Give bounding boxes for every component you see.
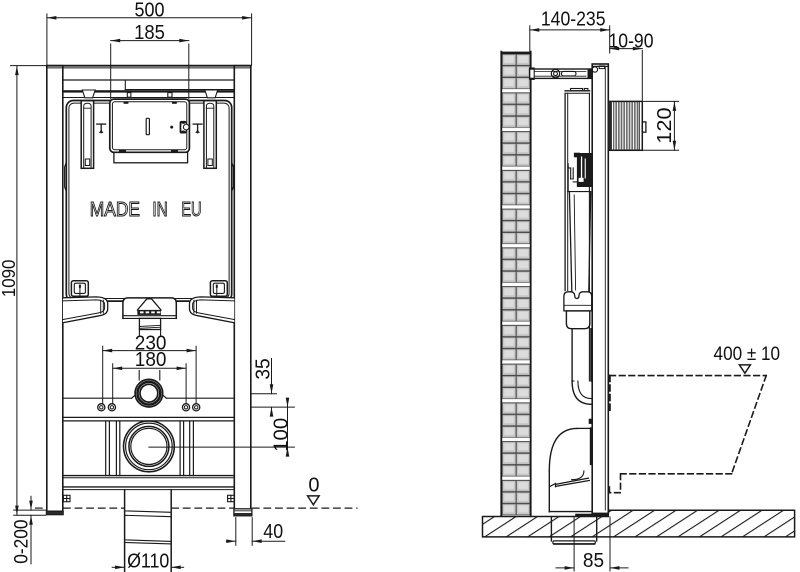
svg-text:400 ± 10: 400 ± 10 [714,344,781,365]
svg-text:35: 35 [252,358,274,379]
svg-text:40: 40 [263,521,283,543]
svg-text:140-235: 140-235 [541,9,606,31]
svg-text:10-90: 10-90 [609,30,654,52]
svg-text:1090: 1090 [0,260,19,298]
svg-text:0-200: 0-200 [12,519,33,563]
svg-text:EU: EU [181,198,201,221]
svg-text:Ø110: Ø110 [127,550,169,572]
svg-text:120: 120 [654,107,676,143]
svg-text:0: 0 [308,475,319,497]
svg-text:500: 500 [135,0,165,22]
svg-text:100: 100 [271,418,293,452]
svg-text:IN: IN [152,198,167,221]
svg-text:185: 185 [134,22,165,44]
svg-text:85: 85 [583,550,604,572]
svg-text:MADE: MADE [90,198,140,221]
svg-text:180: 180 [135,349,167,371]
